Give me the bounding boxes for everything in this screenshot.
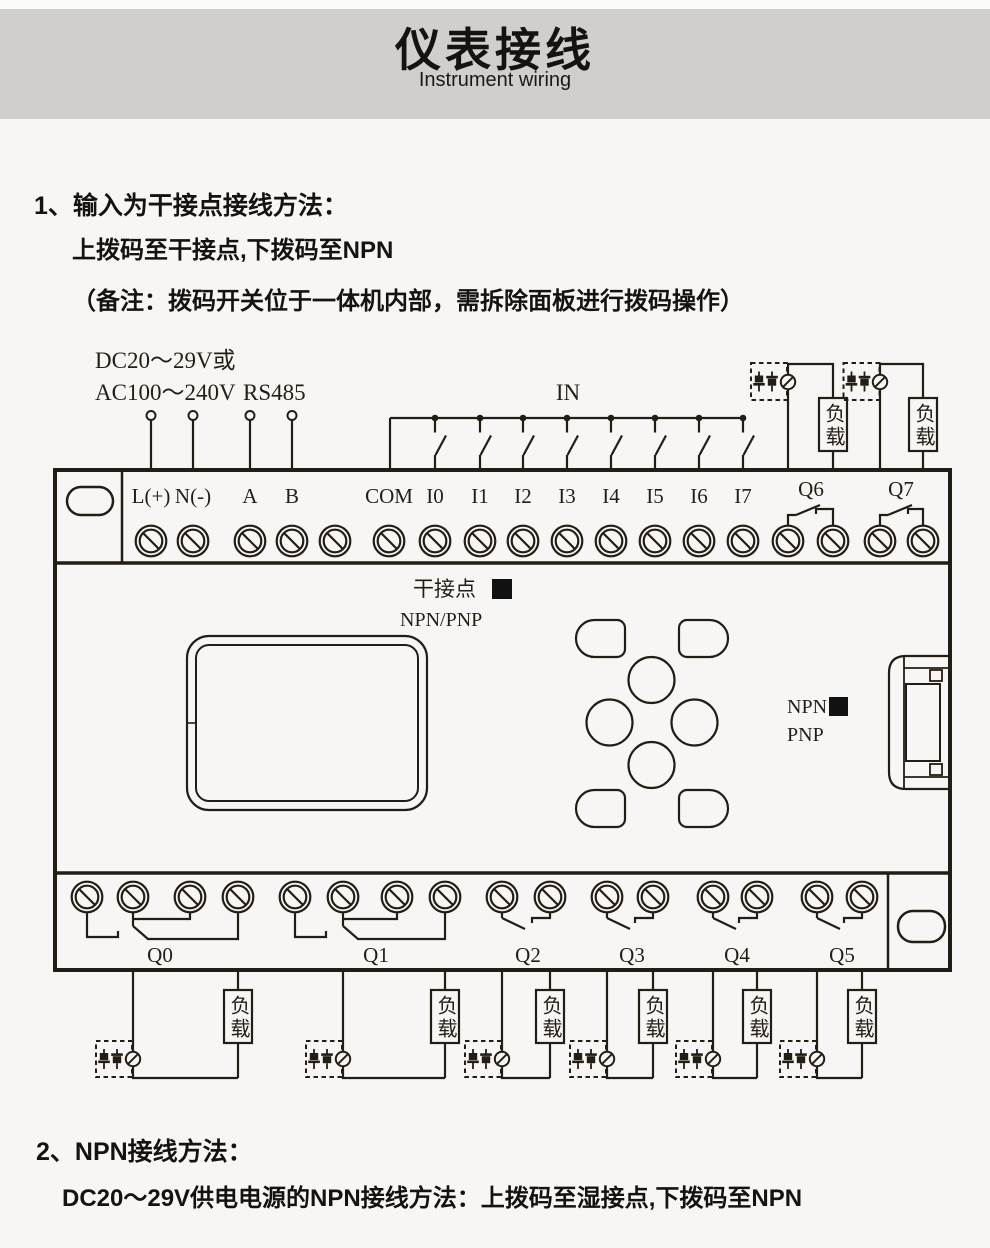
keypad-right-button: [672, 700, 718, 746]
input-switch-i7: [740, 415, 754, 470]
screw-terminal: [535, 882, 566, 913]
q3-circuit: 负载: [570, 970, 667, 1078]
snubber-diode-icon: [572, 1049, 584, 1069]
keypad-down-button: [629, 742, 675, 788]
screw-terminal: [420, 526, 451, 557]
npn-pnp-label: NPN/PNP: [400, 609, 482, 631]
input-switch-i1: [477, 415, 491, 470]
ac-source-icon: [126, 1052, 140, 1066]
mounting-slot: [67, 487, 113, 515]
screw-terminal: [638, 882, 669, 913]
screw-terminal: [277, 526, 308, 557]
pnp-label: PNP: [787, 724, 824, 746]
keypad-corner-button: [576, 790, 625, 827]
dip-switch-labels: 干接点 NPN/PNP NPN PNP: [400, 577, 848, 746]
terminal-label-i5: I5: [646, 484, 664, 508]
screw-terminal: [728, 526, 759, 557]
load-label: 负载: [851, 995, 873, 1041]
power-label-line1: DC20～29V或: [95, 348, 236, 373]
screw-terminal: [178, 526, 209, 557]
screw-terminal: [802, 882, 833, 913]
output-label-q0: Q0: [147, 943, 173, 967]
q4-circuit: 负载: [676, 970, 771, 1078]
bottom-output-labels: Q0 Q1 Q2 Q3 Q4 Q5: [147, 943, 855, 967]
wire-end-circle: [288, 411, 297, 420]
screw-terminal: [382, 882, 413, 913]
wire-end-circle: [189, 411, 198, 420]
screw-terminal: [908, 526, 939, 557]
device-screen: [187, 636, 427, 810]
load-label: 负载: [434, 995, 456, 1041]
load-label: 负载: [227, 995, 249, 1041]
screw-terminal: [552, 526, 583, 557]
output-label-q4: Q4: [724, 943, 750, 967]
terminal-label-com: COM: [365, 484, 413, 508]
dip-position-square-icon: [829, 697, 848, 716]
snubber-diode-icon: [111, 1049, 123, 1069]
in-label: IN: [556, 380, 581, 405]
snubber-diode-icon: [766, 372, 778, 392]
ac-source-icon: [781, 375, 795, 389]
load-label: 负载: [746, 995, 768, 1041]
screw-terminal: [818, 526, 849, 557]
snubber-diode-icon: [691, 1049, 703, 1069]
screw-terminal: [742, 882, 773, 913]
screw-terminal: [175, 882, 206, 913]
screw-terminal: [374, 526, 405, 557]
wire-end-circle: [246, 411, 255, 420]
rs485-label: RS485: [243, 380, 306, 405]
output-label-q5: Q5: [829, 943, 855, 967]
wire-end-circle: [147, 411, 156, 420]
snubber-diode-icon: [480, 1049, 492, 1069]
snubber-diode-icon: [321, 1049, 333, 1069]
screw-terminal: [328, 882, 359, 913]
load-label: 负载: [642, 995, 664, 1041]
snubber-diode-icon: [846, 372, 858, 392]
screw-terminal: [487, 882, 518, 913]
q1-circuit: 负载: [306, 970, 459, 1078]
input-switch-i3: [564, 415, 578, 470]
snubber-diode-icon: [753, 372, 765, 392]
snubber-diode-icon: [467, 1049, 479, 1069]
npn-label: NPN: [787, 696, 827, 718]
q2-circuit: 负载: [465, 970, 564, 1078]
screw-terminal: [136, 526, 167, 557]
input-switch-i2: [520, 415, 534, 470]
terminal-label-i7: I7: [734, 484, 752, 508]
screw-terminal: [596, 526, 627, 557]
snubber-diode-icon: [98, 1049, 110, 1069]
input-switch-i6: [696, 415, 710, 470]
snubber-diode-icon: [859, 372, 871, 392]
device-keypad: [576, 620, 728, 827]
ac-source-icon: [873, 375, 887, 389]
screw-terminal: [465, 526, 496, 557]
output-label-q2: Q2: [515, 943, 541, 967]
terminal-label-b: B: [285, 484, 299, 508]
snubber-diode-icon: [585, 1049, 597, 1069]
snubber-diode-icon: [782, 1049, 794, 1069]
terminal-label-i2: I2: [514, 484, 532, 508]
top-terminal-screws: [136, 526, 939, 557]
screw-terminal: [640, 526, 671, 557]
terminal-label-n: N(-): [175, 484, 211, 508]
dry-contact-label: 干接点: [413, 577, 476, 601]
snubber-diode-icon: [308, 1049, 320, 1069]
snubber-diode-icon: [795, 1049, 807, 1069]
dip-position-square-icon: [492, 579, 512, 599]
mounting-slot: [898, 911, 945, 942]
q5-circuit: 负载: [780, 970, 876, 1078]
input-switch-i0: [432, 415, 446, 470]
screw-terminal: [118, 882, 149, 913]
screw-terminal: [592, 882, 623, 913]
q6-circuit: 负载: [751, 363, 847, 470]
load-label: 负载: [539, 995, 561, 1041]
ac-source-icon: [600, 1052, 614, 1066]
side-connector: [889, 656, 948, 789]
ac-source-icon: [706, 1052, 720, 1066]
terminal-label-q6: Q6: [798, 477, 824, 501]
terminal-label-l: L(+): [132, 484, 171, 508]
screw-terminal: [72, 882, 103, 913]
keypad-corner-button: [679, 790, 728, 827]
screw-terminal: [508, 526, 539, 557]
ac-source-icon: [336, 1052, 350, 1066]
power-input-wires: [147, 411, 297, 470]
ac-source-icon: [810, 1052, 824, 1066]
q6-q7-contacts: [788, 505, 923, 526]
screw-terminal: [223, 882, 254, 913]
terminal-label-i3: I3: [558, 484, 576, 508]
power-supply-labels: DC20～29V或 AC100～240V RS485 IN: [95, 348, 581, 405]
keypad-left-button: [587, 700, 633, 746]
wiring-diagram: DC20～29V或 AC100～240V RS485 IN 负载: [0, 0, 990, 1248]
keypad-corner-button: [576, 620, 625, 657]
screw-terminal: [430, 882, 461, 913]
screw-terminal: [698, 882, 729, 913]
screw-terminal: [320, 526, 351, 557]
terminal-label-i0: I0: [426, 484, 444, 508]
ac-source-icon: [495, 1052, 509, 1066]
power-label-line2: AC100～240V: [95, 380, 236, 405]
output-label-q3: Q3: [619, 943, 645, 967]
input-switch-i5: [652, 415, 666, 470]
keypad-corner-button: [679, 620, 728, 657]
top-terminal-labels: L(+) N(-) A B COM I0 I1 I2 I3 I4 I5 I6 I…: [132, 477, 914, 508]
output-label-q1: Q1: [363, 943, 389, 967]
q7-circuit: 负载: [844, 363, 938, 470]
screw-terminal: [684, 526, 715, 557]
terminal-label-q7: Q7: [888, 477, 914, 501]
snubber-diode-icon: [678, 1049, 690, 1069]
screw-terminal: [235, 526, 266, 557]
terminal-label-i6: I6: [690, 484, 708, 508]
bottom-terminal-screws: [72, 882, 878, 913]
terminal-label-i1: I1: [471, 484, 489, 508]
terminal-label-i4: I4: [602, 484, 620, 508]
keypad-up-button: [629, 657, 675, 703]
terminal-label-a: A: [242, 484, 258, 508]
screw-terminal: [280, 882, 311, 913]
bottom-relay-contacts: [87, 913, 862, 939]
input-switches: [432, 415, 754, 470]
q0-circuit: 负载: [96, 970, 252, 1078]
input-switch-i4: [608, 415, 622, 470]
load-label: 负载: [822, 403, 844, 449]
load-label: 负载: [912, 403, 934, 449]
screw-terminal: [847, 882, 878, 913]
screw-terminal: [773, 526, 804, 557]
screw-terminal: [865, 526, 896, 557]
